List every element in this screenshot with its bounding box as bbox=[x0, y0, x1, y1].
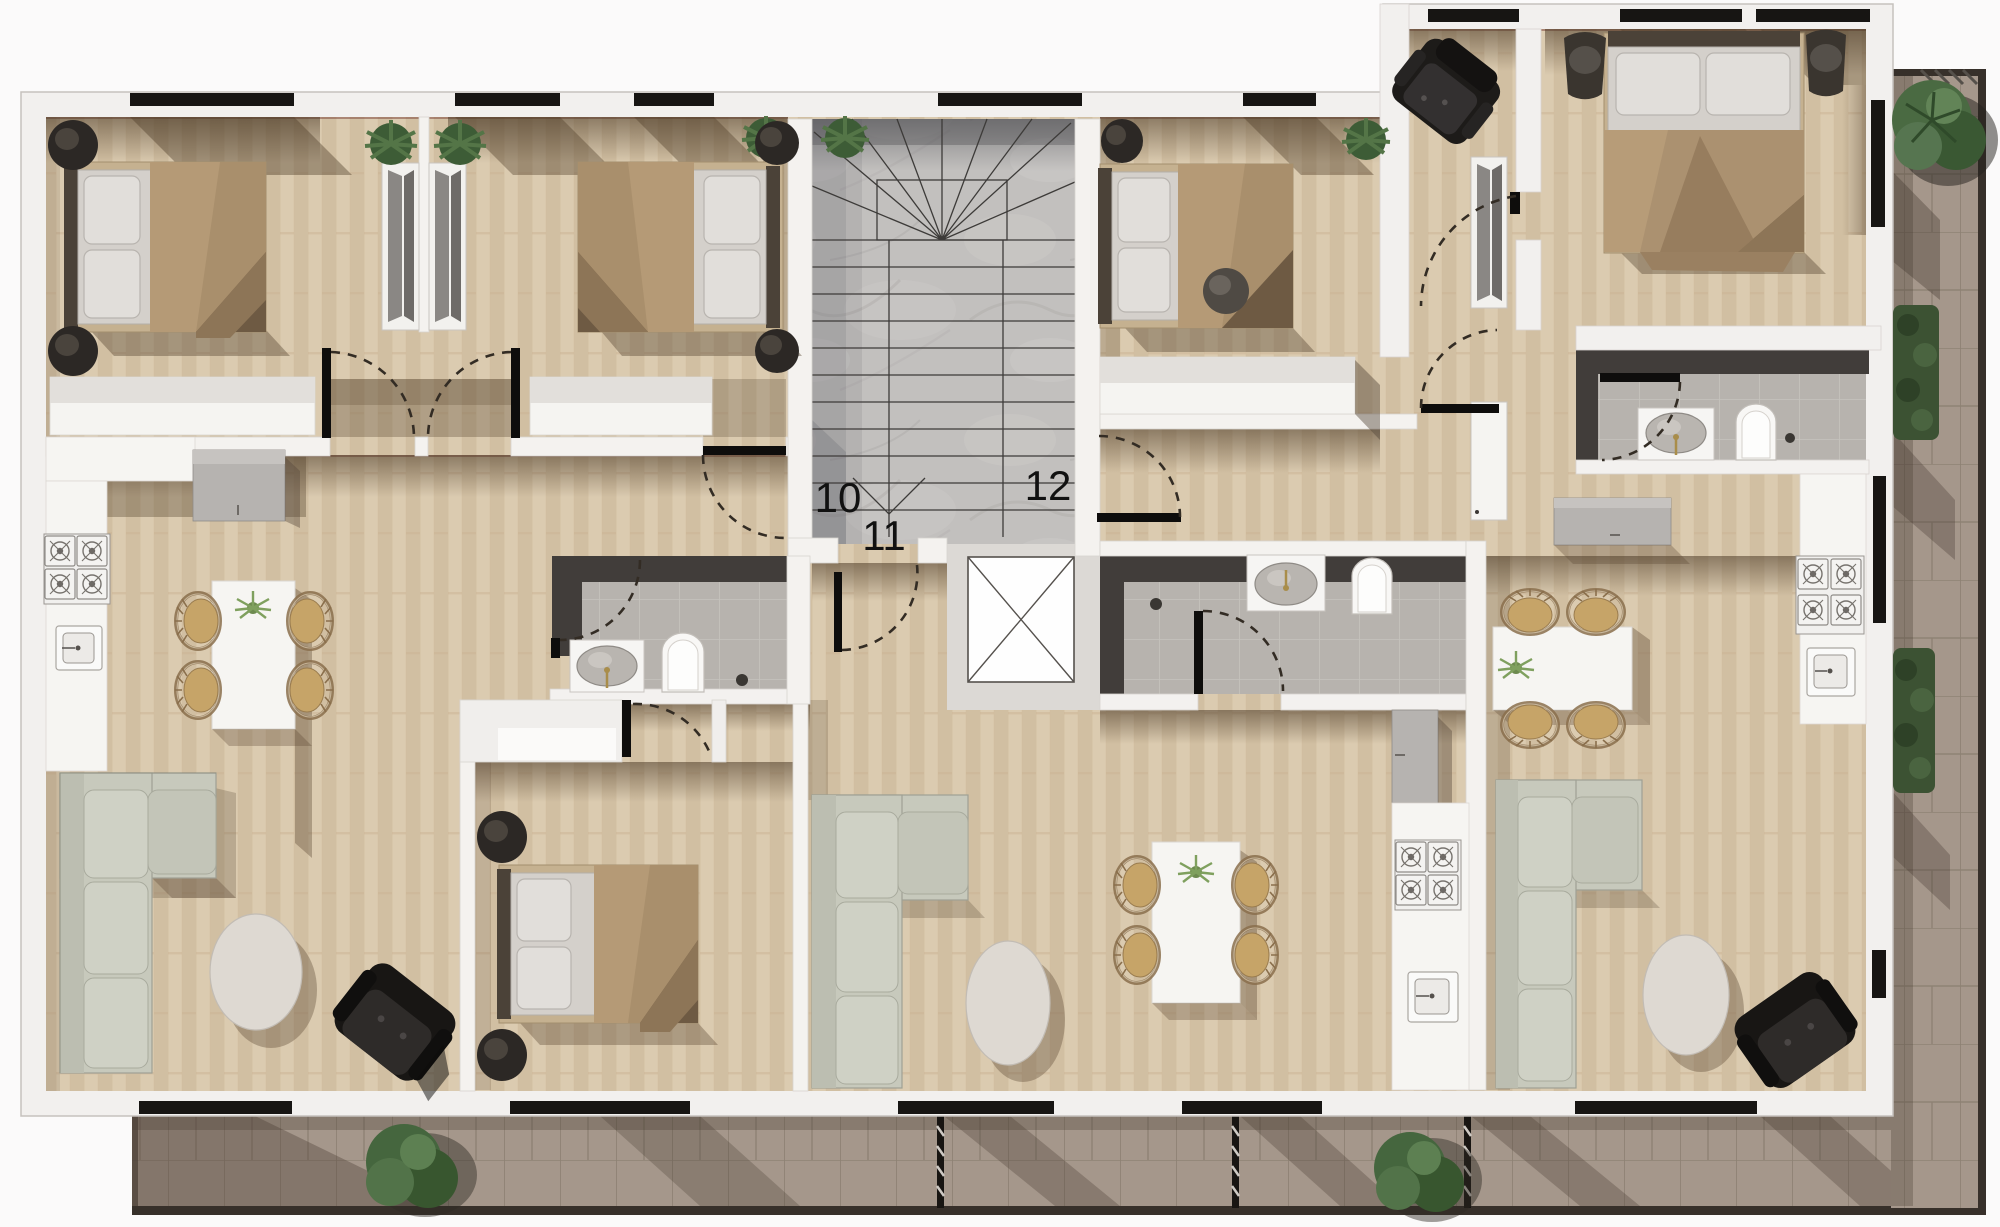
svg-text:10: 10 bbox=[815, 474, 862, 521]
svg-text:12: 12 bbox=[1025, 462, 1072, 509]
svg-text:11: 11 bbox=[862, 512, 906, 559]
